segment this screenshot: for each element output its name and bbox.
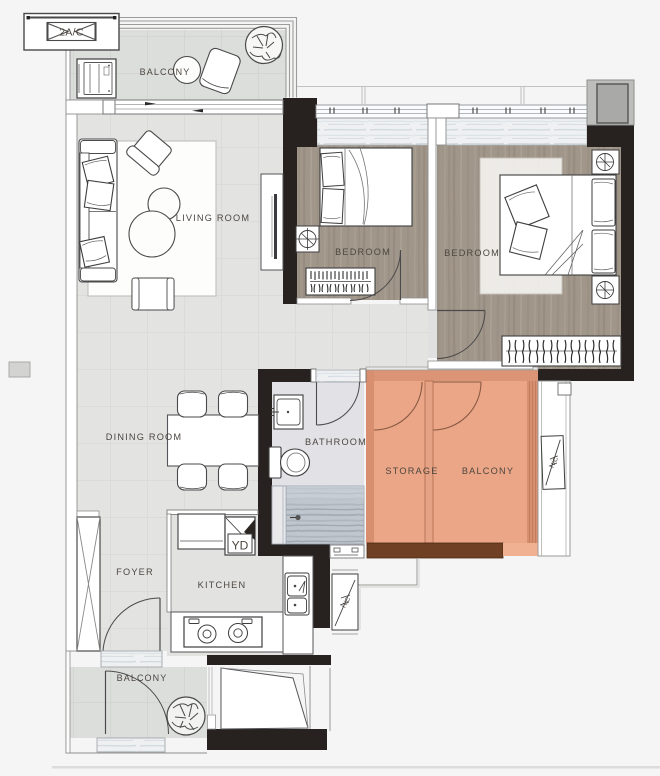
svg-text:BATHROOM: BATHROOM (305, 437, 367, 447)
svg-text:BALCONY: BALCONY (140, 67, 191, 77)
svg-text:BEDROOM: BEDROOM (335, 247, 391, 257)
svg-text:KITCHEN: KITCHEN (198, 580, 247, 590)
svg-text:YD: YD (232, 539, 249, 553)
svg-text:DINING ROOM: DINING ROOM (106, 432, 183, 442)
svg-text:2A/C: 2A/C (59, 27, 84, 39)
svg-text:FOYER: FOYER (116, 567, 154, 577)
svg-text:LIVING ROOM: LIVING ROOM (176, 213, 250, 223)
svg-text:BALCONY: BALCONY (117, 673, 168, 683)
svg-text:BEDROOM: BEDROOM (444, 248, 500, 258)
svg-text:BALCONY: BALCONY (462, 466, 514, 476)
svg-text:STORAGE: STORAGE (385, 466, 438, 476)
